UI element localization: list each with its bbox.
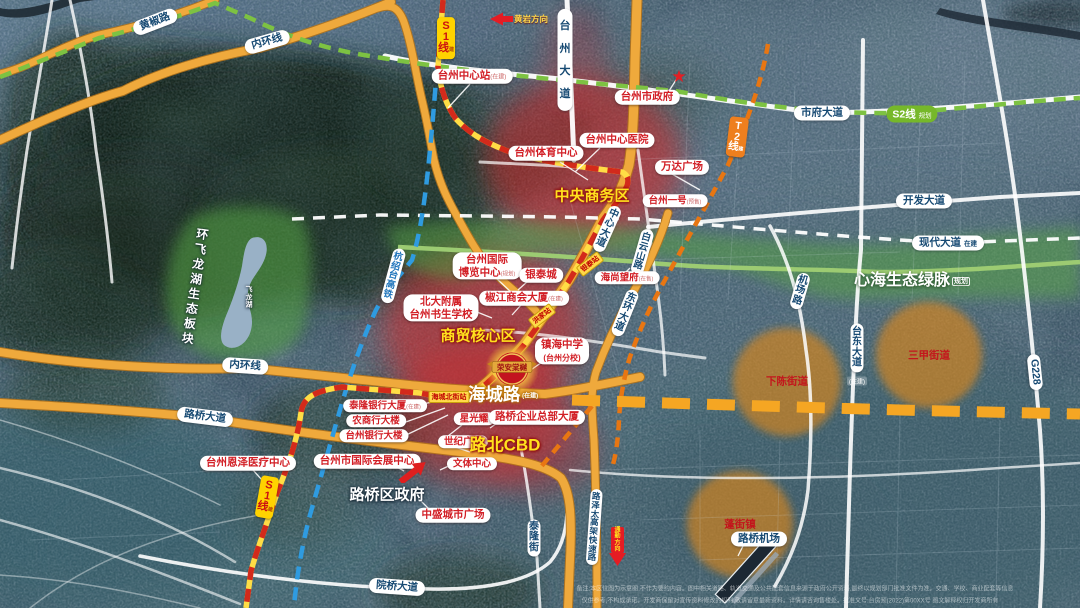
svg-text:荣安棠樾: 荣安棠樾 (496, 362, 527, 372)
svg-text:★: ★ (671, 67, 686, 86)
